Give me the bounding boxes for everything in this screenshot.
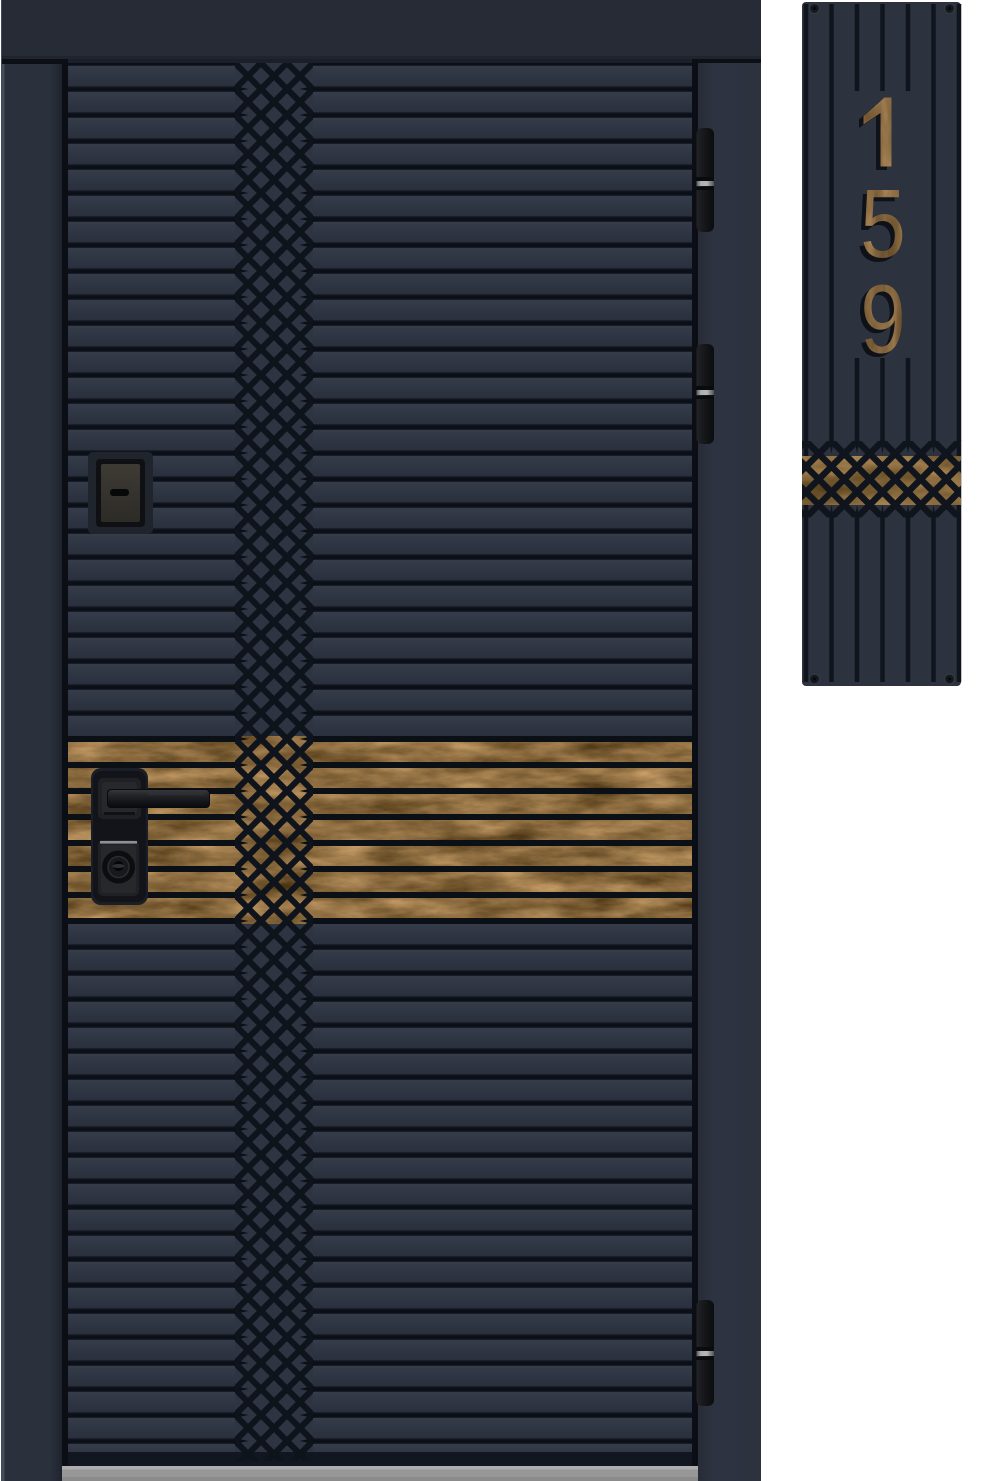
- svg-text:9: 9: [860, 265, 905, 373]
- svg-text:5: 5: [860, 169, 905, 277]
